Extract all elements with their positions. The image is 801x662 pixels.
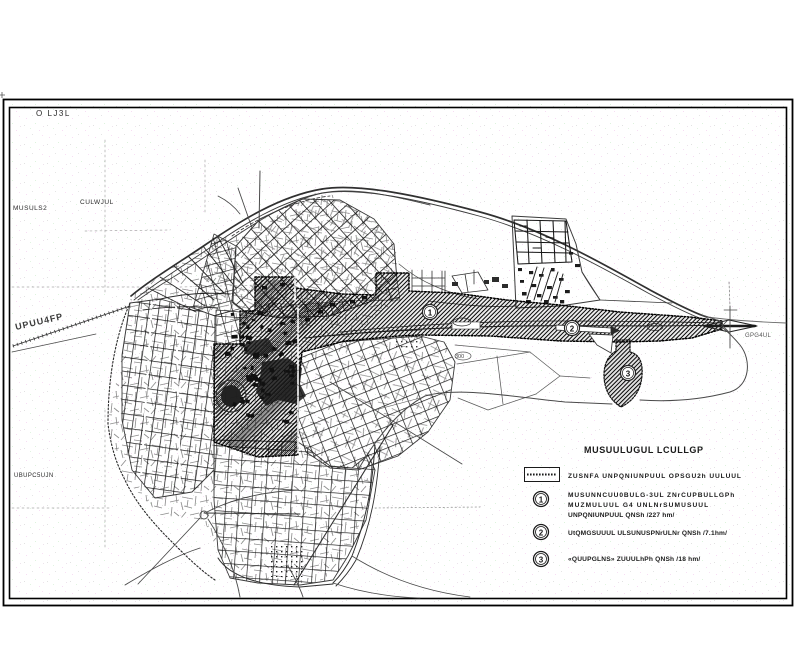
svg-text:2: 2 xyxy=(539,528,544,537)
svg-text:ZUSNFA UNPQNIUNPUUL OPSGU2h UU: ZUSNFA UNPQNIUNPUUL OPSGU2h UULUUL xyxy=(568,473,742,480)
svg-text:2: 2 xyxy=(570,325,575,334)
svg-text:UBUPC5UJN: UBUPC5UJN xyxy=(14,473,54,479)
svg-text:UtQMGSUUUL ULSUNUSPNrULNr QNSh: UtQMGSUUUL ULSUNUSPNrULNr QNSh /7.1hm/ xyxy=(568,530,727,537)
svg-text:CULWJUL: CULWJUL xyxy=(80,199,114,206)
svg-text:1: 1 xyxy=(428,309,433,318)
svg-text:MUSULS2: MUSULS2 xyxy=(13,205,47,212)
svg-text:3: 3 xyxy=(626,370,631,379)
svg-text:3: 3 xyxy=(539,555,544,564)
svg-text:GPG4UL: GPG4UL xyxy=(745,333,772,339)
svg-text:MUSUNNCUU0BULG-3UL ZNrCUPBULLG: MUSUNNCUU0BULG-3UL ZNrCUPBULLGPh xyxy=(568,492,735,499)
svg-text:300: 300 xyxy=(455,354,464,360)
svg-text:MUSUULUGUL LCULLGP: MUSUULUGUL LCULLGP xyxy=(584,445,704,455)
svg-text:«QUUPGLNS» ZUUULhPh QNSh /18 h: «QUUPGLNS» ZUUULhPh QNSh /18 hm/ xyxy=(568,556,700,563)
svg-text:MUZMULUUL G4 UNLNrSUMUSUUL: MUZMULUUL G4 UNLNrSUMUSUUL xyxy=(568,502,709,509)
svg-text:O LJ3L: O LJ3L xyxy=(36,109,71,118)
svg-text:UNPQNIUNPUUL QNSh /227 hm/: UNPQNIUNPUUL QNSh /227 hm/ xyxy=(568,512,675,519)
svg-text:1: 1 xyxy=(539,495,544,504)
